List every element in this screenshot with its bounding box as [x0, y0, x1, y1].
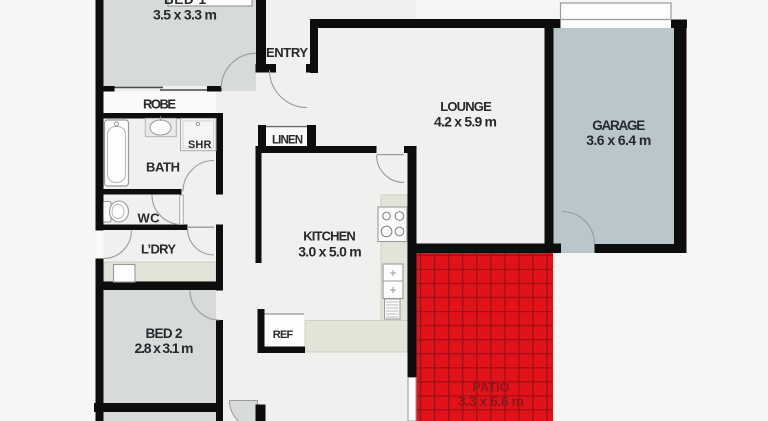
svg-text:REF: REF — [273, 329, 294, 341]
svg-text:3.3 x 6.6 m: 3.3 x 6.6 m — [458, 393, 524, 409]
svg-text:3.5 x 3.3 m: 3.5 x 3.3 m — [153, 7, 217, 23]
svg-text:BED 2: BED 2 — [146, 326, 183, 341]
svg-text:L’DRY: L’DRY — [141, 242, 176, 257]
svg-text:3.0 x 5.0 m: 3.0 x 5.0 m — [298, 244, 362, 260]
svg-text:ENTRY: ENTRY — [266, 45, 308, 60]
svg-text:4.2 x 5.9 m: 4.2 x 5.9 m — [434, 114, 497, 130]
svg-text:ROBE: ROBE — [143, 97, 176, 112]
svg-text:KITCHEN: KITCHEN — [303, 229, 356, 244]
svg-text:LOUNGE: LOUNGE — [440, 99, 492, 114]
svg-text:LINEN: LINEN — [272, 135, 303, 147]
svg-text:2.8 x 3.1 m: 2.8 x 3.1 m — [135, 340, 194, 356]
svg-text:WC: WC — [138, 211, 161, 226]
svg-text:3.6 x 6.4 m: 3.6 x 6.4 m — [586, 132, 651, 148]
svg-text:GARAGE: GARAGE — [592, 118, 645, 133]
svg-text:BATH: BATH — [146, 160, 180, 175]
svg-text:SHR: SHR — [188, 139, 212, 151]
